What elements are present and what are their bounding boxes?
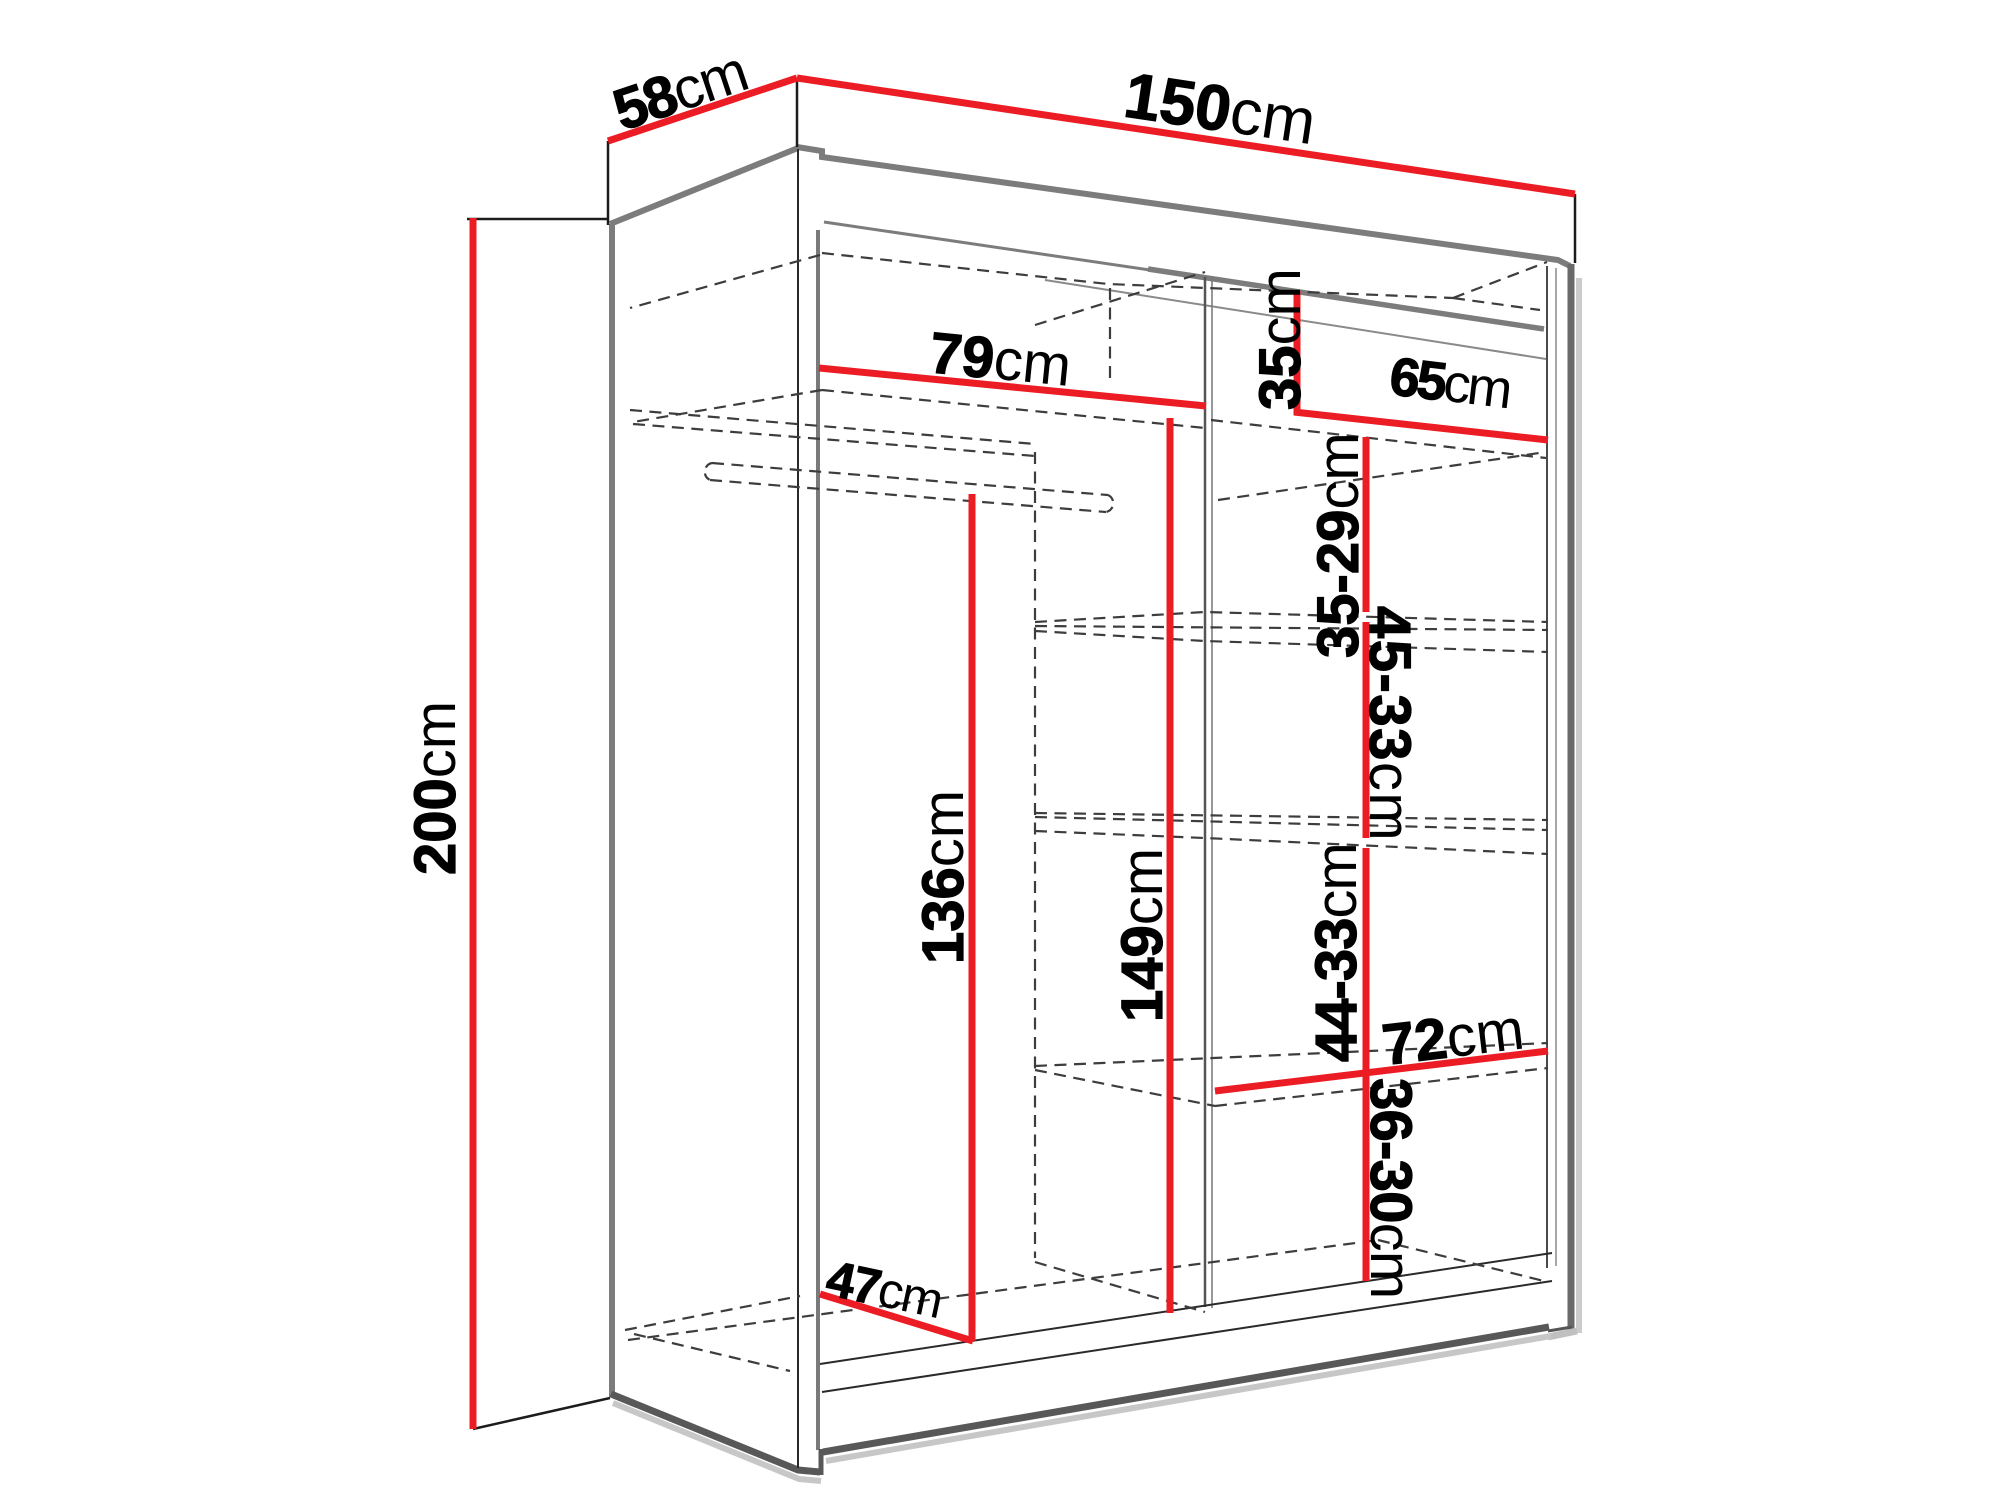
svg-text:45-33cm: 45-33cm xyxy=(1357,606,1422,842)
svg-text:35cm: 35cm xyxy=(1248,268,1313,410)
svg-text:200cm: 200cm xyxy=(403,701,468,875)
svg-text:44-33cm: 44-33cm xyxy=(1304,843,1369,1062)
svg-text:149cm: 149cm xyxy=(1110,848,1175,1022)
svg-text:136cm: 136cm xyxy=(911,790,976,964)
svg-text:36-30cm: 36-30cm xyxy=(1358,1078,1423,1298)
